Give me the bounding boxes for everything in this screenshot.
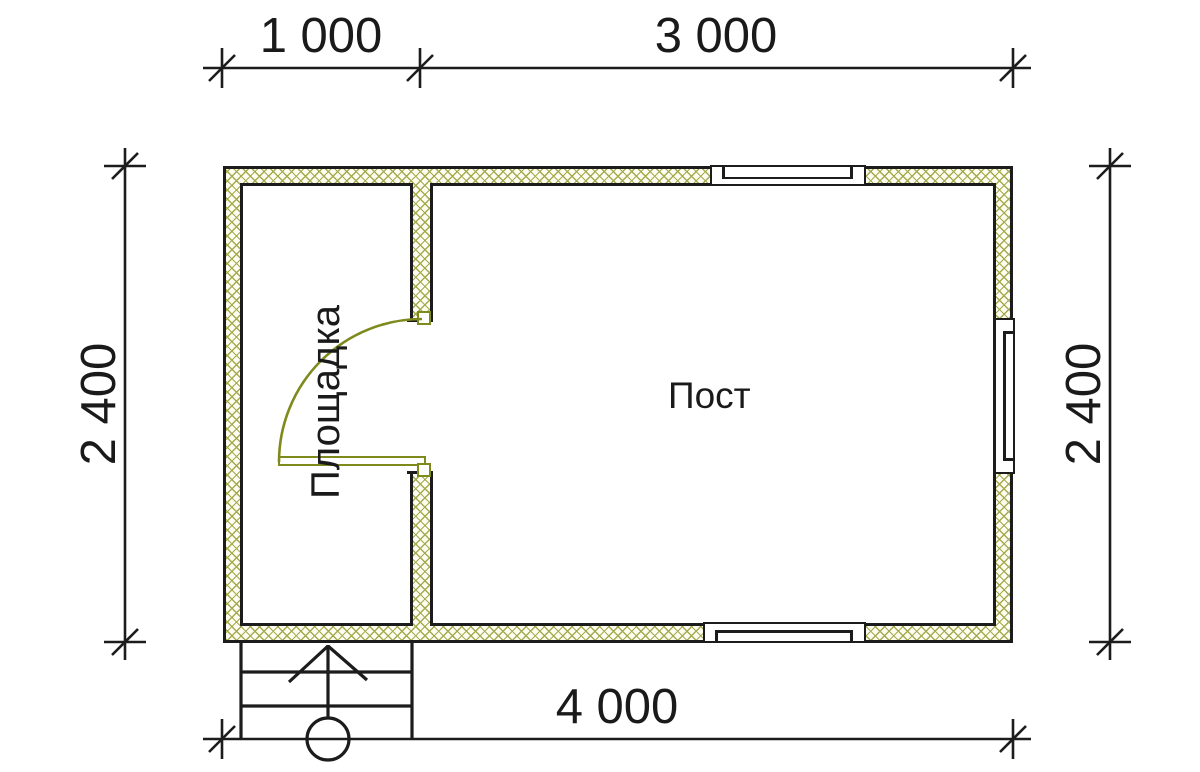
stairs-symbol	[241, 643, 412, 760]
dimension-label-right: 2 400	[1059, 324, 1109, 484]
dimension-label-bottom: 4 000	[517, 683, 717, 731]
plan-linework	[0, 0, 1200, 772]
room-label-left: Площадка	[304, 302, 348, 502]
dimension-label-top-left: 1 000	[221, 12, 421, 60]
dimension-label-top-right: 3 000	[616, 12, 816, 60]
dimension-label-left: 2 400	[74, 324, 124, 484]
stairs-arrowhead	[289, 646, 328, 682]
room-label-right: Пост	[668, 376, 788, 416]
stairs-arrowhead	[328, 646, 367, 680]
floor-plan-canvas: VANDA	[0, 0, 1200, 772]
door-swing-arc	[279, 319, 422, 462]
